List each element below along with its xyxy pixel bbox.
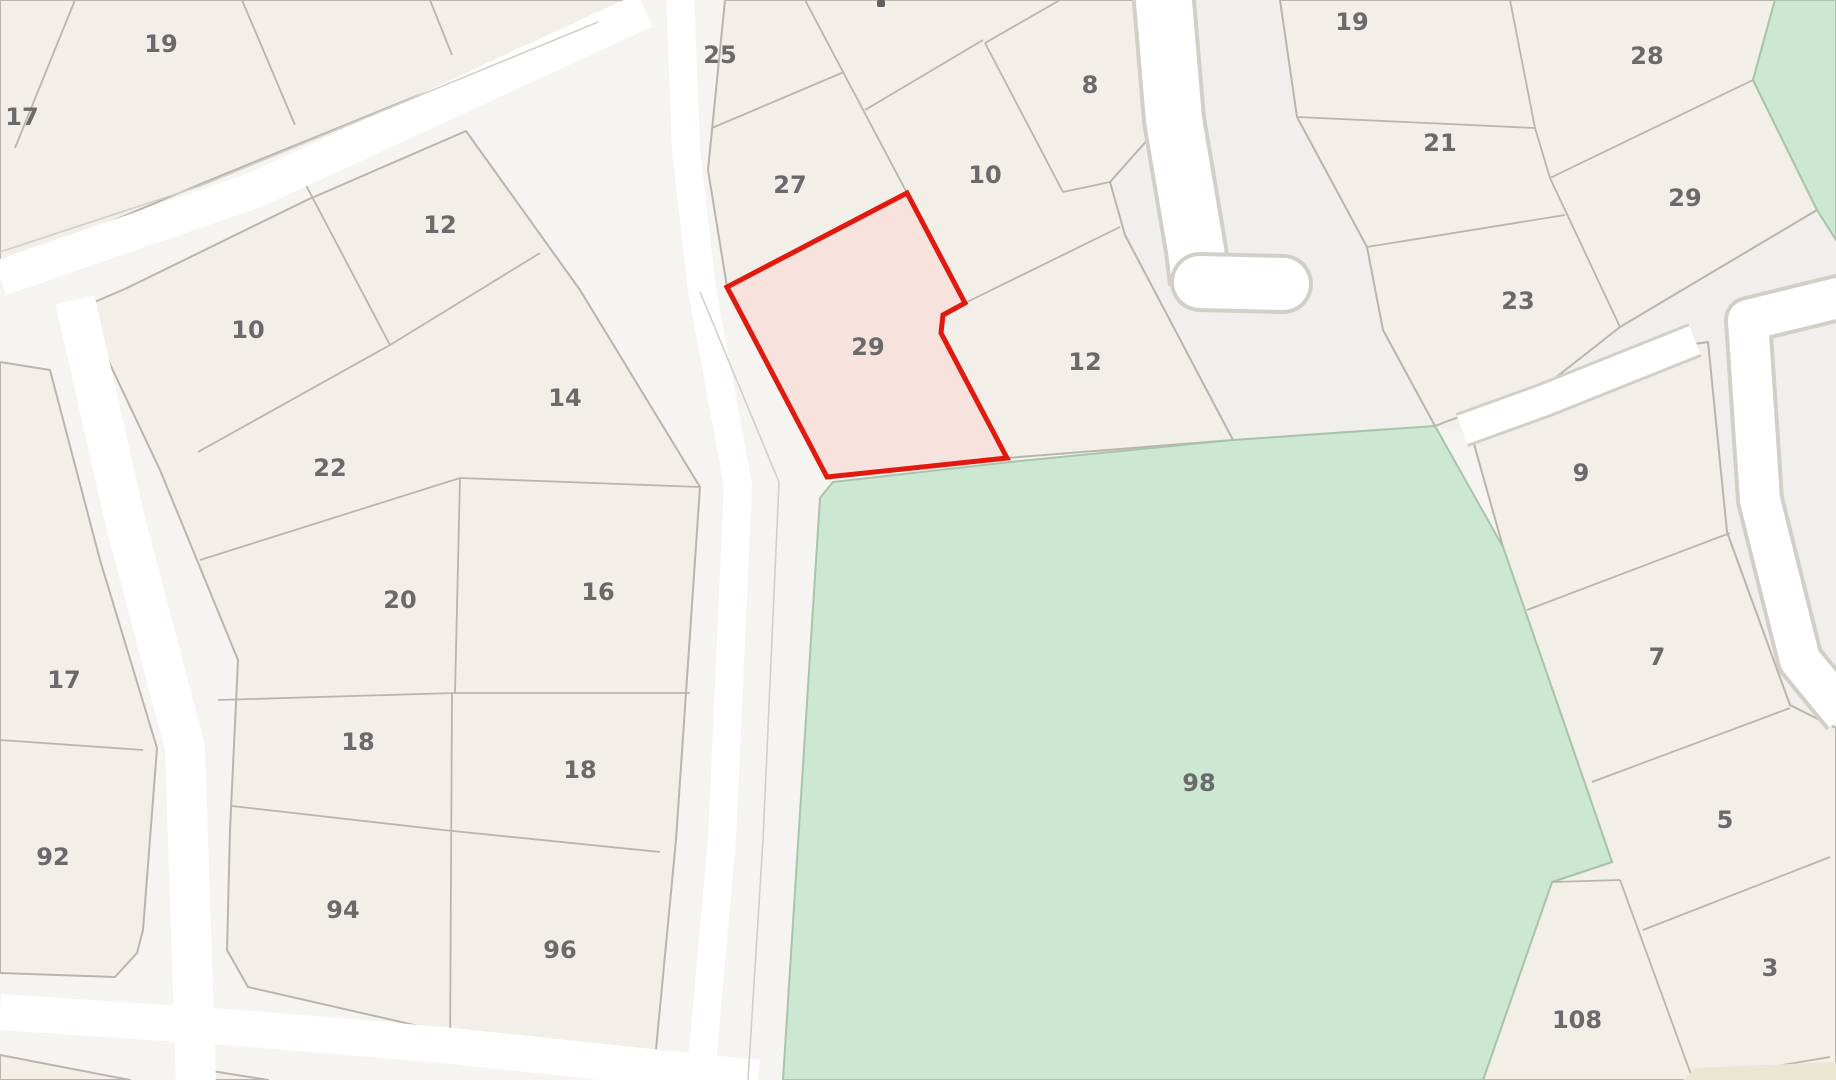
block-bottom-sliver-left[interactable] bbox=[0, 1055, 130, 1080]
highlighted-parcel-label: 29 bbox=[851, 333, 884, 361]
parcel-label: 10 bbox=[231, 316, 264, 344]
parcel-label: 27 bbox=[773, 171, 806, 199]
parcel-label: 17 bbox=[5, 103, 38, 131]
parcel-label: 94 bbox=[326, 896, 359, 924]
park-label: 98 bbox=[1182, 769, 1215, 797]
parcel-label: 12 bbox=[423, 211, 456, 239]
parcel-label: 19 bbox=[144, 30, 177, 58]
parcel-label: 21 bbox=[1423, 129, 1456, 157]
parcel-label: 18 bbox=[563, 756, 596, 784]
parcel-label: 18 bbox=[341, 728, 374, 756]
park[interactable] bbox=[783, 426, 1612, 1080]
parcel-label: 8 bbox=[1082, 71, 1099, 99]
road-j-vertical[interactable] bbox=[1163, 0, 1200, 282]
cutoff-label-mark bbox=[877, 0, 885, 7]
parcel-label: 96 bbox=[543, 936, 576, 964]
parcel-label: 22 bbox=[313, 454, 346, 482]
parcel-label: 16 bbox=[581, 578, 614, 606]
parcel-label: 5 bbox=[1717, 806, 1734, 834]
parcel-label: 25 bbox=[703, 41, 736, 69]
parcel-label: 23 bbox=[1501, 287, 1534, 315]
parcel-label: 10 bbox=[968, 161, 1001, 189]
parcel-label: 108 bbox=[1552, 1006, 1602, 1034]
parcel-label: 12 bbox=[1068, 348, 1101, 376]
parcel-label: 14 bbox=[548, 384, 581, 412]
parcel-label: 3 bbox=[1762, 954, 1779, 982]
parcel-label: 29 bbox=[1668, 184, 1701, 212]
parcel-label: 20 bbox=[383, 586, 416, 614]
parcel-label: 17 bbox=[47, 666, 80, 694]
parcel-label: 7 bbox=[1649, 643, 1666, 671]
road-j-stub[interactable] bbox=[1200, 282, 1283, 284]
parcel-label: 92 bbox=[36, 843, 69, 871]
parcel-label: 19 bbox=[1335, 8, 1368, 36]
parcel-label: 9 bbox=[1573, 459, 1590, 487]
parcel-label: 28 bbox=[1630, 42, 1663, 70]
map-viewport[interactable]: 1917179212101422201618189496252710812192… bbox=[0, 0, 1836, 1080]
cadastral-map[interactable]: 1917179212101422201618189496252710812192… bbox=[0, 0, 1836, 1080]
